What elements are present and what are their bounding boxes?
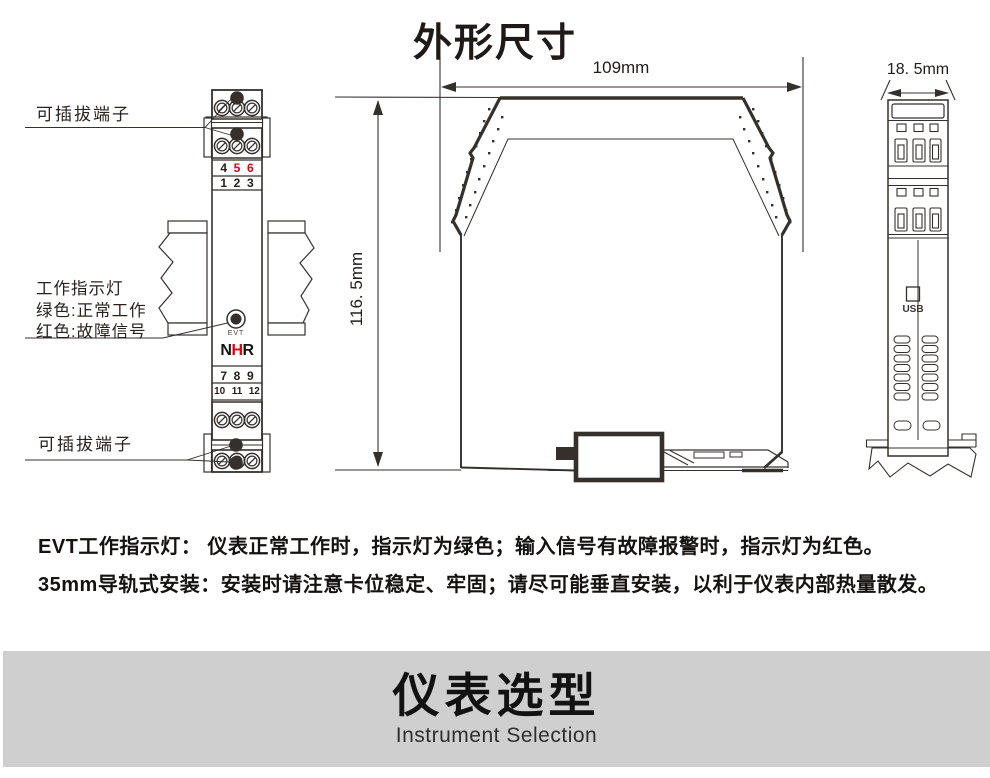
din-clip bbox=[548, 434, 788, 480]
module-front-view bbox=[204, 90, 270, 472]
callout-bottom-terminal: 可插拔端子 bbox=[38, 430, 133, 455]
callout-top-terminal: 可插拔端子 bbox=[36, 100, 131, 125]
wire-hole-top-2 bbox=[230, 127, 244, 141]
vent-dots bbox=[451, 108, 791, 223]
module-side-view bbox=[335, 57, 803, 480]
section-banner: 仪表选型 Instrument Selection bbox=[3, 651, 990, 767]
logo-r: R bbox=[243, 342, 254, 359]
dim-depth-label: 18. 5mm bbox=[868, 61, 968, 79]
evt-led bbox=[231, 314, 242, 325]
terminal-numbers-789: 789 bbox=[212, 369, 262, 383]
banner-title: 仪表选型 bbox=[393, 670, 601, 722]
wire-hole-top-1 bbox=[230, 91, 244, 105]
indicator-line-1: 工作指示灯 bbox=[36, 279, 147, 301]
wire-hole-bottom-2 bbox=[229, 456, 243, 470]
dim-height-label: 116. 5mm bbox=[347, 229, 367, 349]
banner-subtitle: Instrument Selection bbox=[396, 724, 597, 748]
dimension-drawing-page: 外形尺寸 109mm 116. 5mm 18. 5mm 可插拔端子 工作指示灯 … bbox=[0, 0, 990, 778]
wire-hole-bottom-1 bbox=[229, 438, 243, 452]
logo-n: N bbox=[220, 342, 231, 359]
note-evt-indicator: EVT工作指示灯： 仪表正常工作时，指示灯为绿色；输入信号有故障报警时，指示灯为… bbox=[38, 530, 884, 559]
terminal-numbers-101112: 101112 bbox=[209, 386, 265, 397]
terminal-numbers-123: 123 bbox=[212, 176, 262, 190]
callout-indicator: 工作指示灯 绿色:正常工作 红色:故障信号 bbox=[36, 279, 147, 344]
note-rail-mounting: 35mm导轨式安装：安装时请注意卡位稳定、牢固；请尽可能垂直安装，以利于仪表内部… bbox=[38, 568, 938, 597]
dim-width-label: 109mm bbox=[560, 58, 682, 78]
nhr-logo: NHR bbox=[212, 342, 262, 360]
usb-label: USB bbox=[898, 304, 928, 315]
logo-h: H bbox=[231, 342, 242, 359]
indicator-line-2: 绿色:正常工作 bbox=[36, 301, 147, 323]
terminal-numbers-456: 456 bbox=[212, 161, 262, 175]
indicator-line-3: 红色:故障信号 bbox=[36, 322, 147, 344]
module-end-view bbox=[866, 80, 976, 477]
evt-led-label: EVT bbox=[224, 330, 248, 337]
